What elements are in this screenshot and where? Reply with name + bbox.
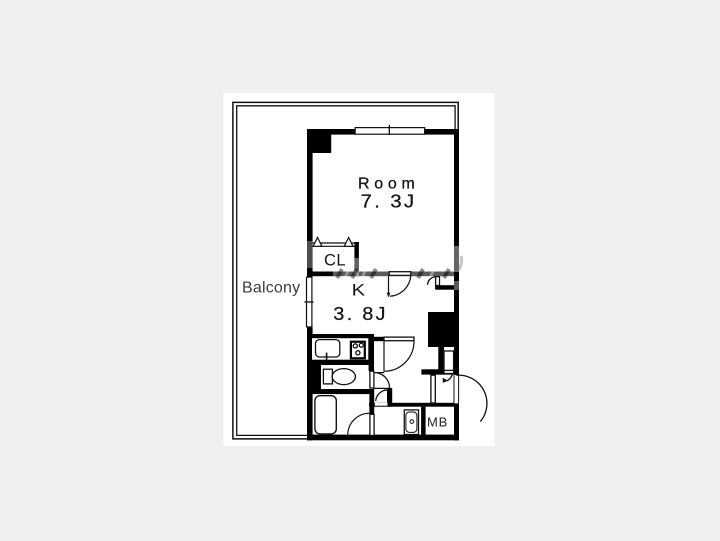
svg-text:CL: CL [324, 251, 346, 269]
svg-text:3. 8J: 3. 8J [333, 304, 388, 324]
svg-text:K: K [352, 281, 366, 300]
svg-text:Balcony: Balcony [242, 279, 300, 296]
svg-text:MB: MB [427, 415, 448, 430]
svg-text:Room: Room [358, 176, 419, 193]
svg-text:7. 3J: 7. 3J [361, 192, 417, 212]
